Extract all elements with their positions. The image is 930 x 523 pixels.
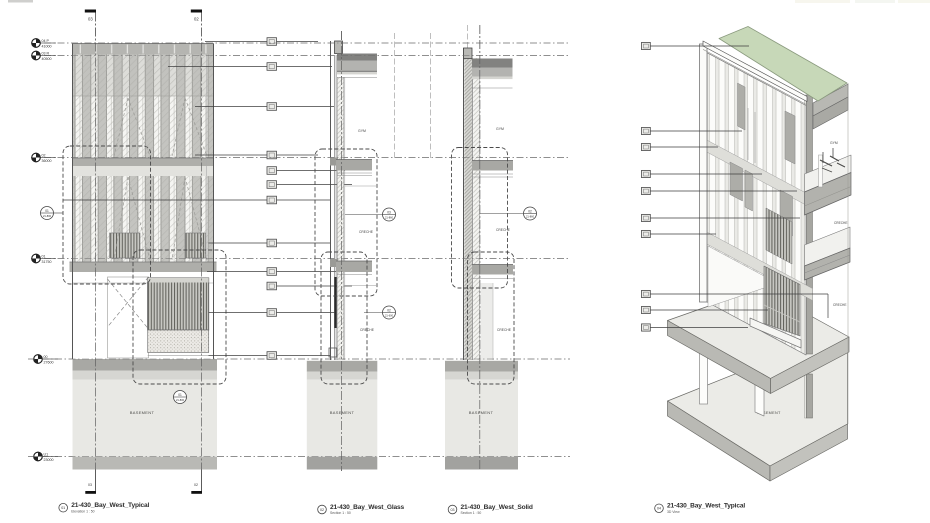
svg-text:02: 02	[42, 153, 46, 157]
svg-text:BASEMENT: BASEMENT	[130, 410, 155, 415]
svg-text:40500: 40500	[42, 57, 52, 61]
svg-text:21-430_Bay_West_Typical: 21-430_Bay_West_Typical	[667, 503, 745, 510]
svg-text:CRECHE: CRECHE	[834, 221, 847, 225]
svg-text:U1: U1	[44, 452, 49, 456]
svg-text:21-600: 21-600	[385, 314, 394, 318]
svg-text:21-800: 21-800	[43, 214, 52, 218]
svg-text:BASEMENT: BASEMENT	[469, 410, 494, 415]
svg-text:GYM: GYM	[496, 127, 504, 131]
svg-text:27600: 27600	[44, 360, 54, 364]
svg-text:36000: 36000	[42, 159, 52, 163]
svg-text:01: 01	[61, 506, 65, 510]
svg-text:41000: 41000	[42, 44, 52, 48]
svg-text:01: 01	[178, 393, 182, 397]
svg-text:00: 00	[44, 355, 48, 359]
svg-text:02: 02	[194, 483, 198, 487]
svg-text:3D View: 3D View	[667, 510, 680, 514]
svg-text:31750: 31750	[42, 260, 52, 264]
svg-text:01: 01	[45, 209, 49, 213]
svg-text:03 R: 03 R	[42, 51, 50, 55]
svg-text:21-860: 21-860	[526, 215, 535, 219]
svg-text:GYM: GYM	[830, 141, 838, 145]
svg-text:02: 02	[320, 508, 324, 512]
svg-text:02: 02	[387, 308, 391, 312]
svg-text:Elevation 1 : 50: Elevation 1 : 50	[71, 509, 94, 513]
svg-text:21-800: 21-800	[176, 398, 185, 402]
svg-text:21-430_Bay_West_Solid: 21-430_Bay_West_Solid	[461, 504, 533, 511]
svg-text:GYM: GYM	[358, 129, 366, 133]
svg-text:04 P: 04 P	[42, 39, 50, 43]
svg-text:Section 1 : 50: Section 1 : 50	[461, 511, 482, 515]
svg-text:03: 03	[451, 508, 455, 512]
svg-text:01: 01	[42, 254, 46, 258]
svg-text:04: 04	[657, 507, 661, 511]
svg-text:CRECHE: CRECHE	[359, 230, 374, 234]
svg-text:CRECHE: CRECHE	[833, 303, 846, 307]
svg-text:Section 1 : 50: Section 1 : 50	[330, 511, 351, 515]
svg-text:03: 03	[88, 17, 93, 22]
svg-text:02: 02	[528, 209, 532, 213]
svg-text:02: 02	[194, 17, 199, 22]
svg-text:21-860: 21-860	[385, 216, 394, 220]
svg-text:21-430_Bay_West_Glass: 21-430_Bay_West_Glass	[330, 504, 405, 511]
svg-text:03: 03	[88, 483, 92, 487]
svg-text:CRECHE: CRECHE	[496, 228, 511, 232]
svg-text:21-430_Bay_West_Typical: 21-430_Bay_West_Typical	[71, 502, 149, 509]
svg-text:CRECHE: CRECHE	[497, 328, 512, 332]
svg-text:23000: 23000	[44, 458, 54, 462]
svg-text:03: 03	[387, 210, 391, 214]
svg-text:BASEMENT: BASEMENT	[330, 410, 355, 415]
